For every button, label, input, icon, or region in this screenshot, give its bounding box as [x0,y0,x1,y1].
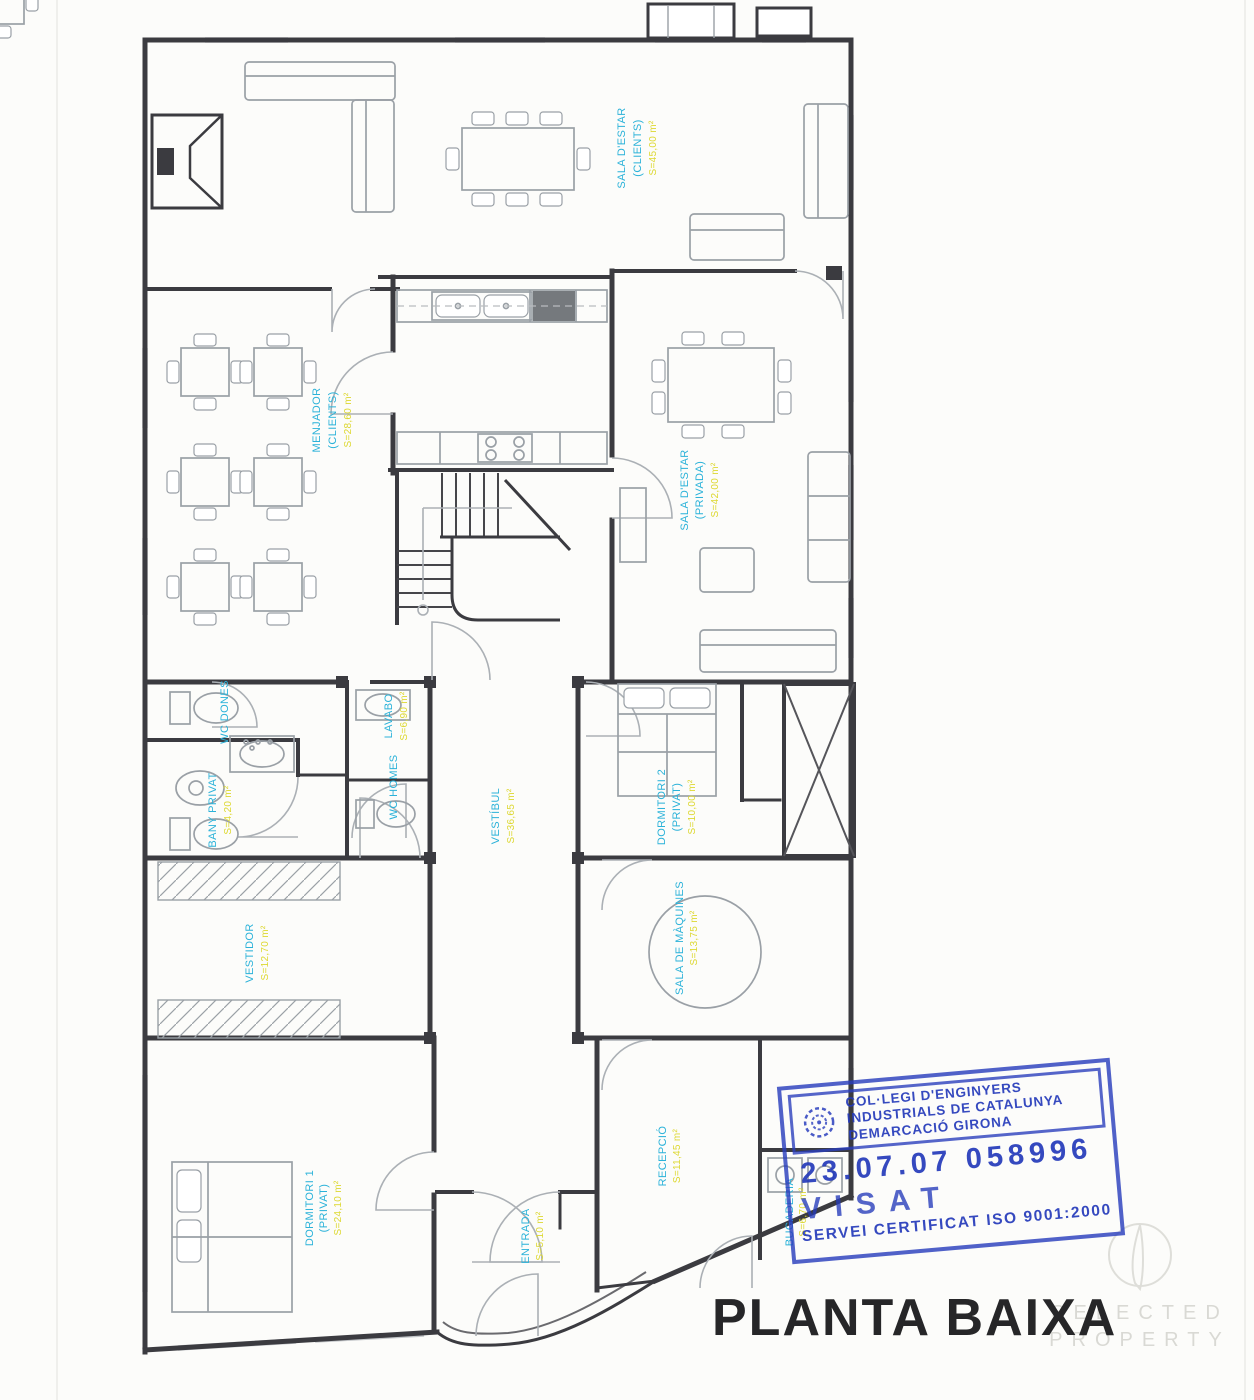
room-area-dormitori-1: S=24,10 m² [333,1180,344,1235]
room-label-sala-maquines: SALA DE MÀQUINES [673,881,686,995]
room-label-dormitori-2-2: (PRIVAT) [671,783,683,832]
scanned-floor-plan-page: { "document": { "title_label": "PLANTA B… [0,0,1254,1400]
stamp-emblem-icon [795,1098,843,1146]
room-label-vestibul: VESTÍBUL [489,788,502,844]
room-label-sala-estar-privada-2: (PRIVADA) [694,461,706,519]
room-area-sala-estar-clients: S=45,00 m² [648,120,659,175]
kitchen-counter-stove [397,432,607,464]
fireplace [152,115,222,208]
page-title: PLANTA BAIXA [712,1288,1052,1348]
room-label-dormitori-1: DORMITORI 1 [304,1170,316,1246]
furniture-layer [0,0,850,1312]
room-label-sala-estar-clients: SALA D'ESTAR [616,107,628,188]
room-area-sala-maquines: S=13,75 m² [689,910,700,965]
walls-layer [145,4,854,1352]
room-area-entrada: S=5,10 m² [535,1211,546,1260]
room-area-recepcio: S=11,45 m² [672,1129,683,1184]
room-label-sala-estar-clients-2: (CLIENTS) [632,119,644,176]
kitchen-counter-sink [397,290,607,322]
room-area-menjador: S=28,60 m² [343,392,354,447]
staircase [397,473,570,623]
room-label-bany-privat: BANY PRIVAT [207,772,219,847]
windows-layer [145,40,851,1348]
dining-table-clients [446,112,590,206]
room-label-vestidor: VESTIDOR [244,923,256,982]
room-area-dormitori-2: S=10,00 m² [687,779,698,834]
room-label-recepcio: RECEPCIÓ [656,1126,669,1187]
room-area-vestibul: S=36,65 m² [506,788,517,843]
room-label-menjador-2: (CLIENTS) [327,391,339,448]
bed-dormitori-1 [172,1162,292,1312]
room-area-sala-estar-privada: S=42,00 m² [710,462,721,517]
room-label-entrada: ENTRADA [520,1208,532,1264]
elevator-shaft [784,684,854,856]
room-area-vestidor: S=12,70 m² [260,925,271,980]
machine-tank [649,896,761,1008]
room-label-menjador: MENJADOR [311,388,323,453]
room-area-bany-privat: S=4,20 m² [223,785,234,834]
approval-stamp: COL·LEGI D'ENGINYERS INDUSTRIALS DE CATA… [777,1058,1125,1264]
room-label-dormitori-1-2: (PRIVAT) [318,1184,330,1233]
dining-table-privada [652,332,791,438]
room-label-dormitori-2: DORMITORI 2 [656,769,668,845]
room-label-wc-dones: WC DONES [219,680,231,744]
room-area-lavabo: S=6,90 m² [399,691,410,740]
room-label-wc-homes: WC HOMES [388,755,400,820]
room-label-sala-estar-privada: SALA D'ESTAR [679,449,691,530]
room-labels-layer: SALA D'ESTAR (CLIENTS) S=45,00 m² MENJAD… [207,107,809,1263]
room-label-lavabo: LAVABO [383,694,395,739]
